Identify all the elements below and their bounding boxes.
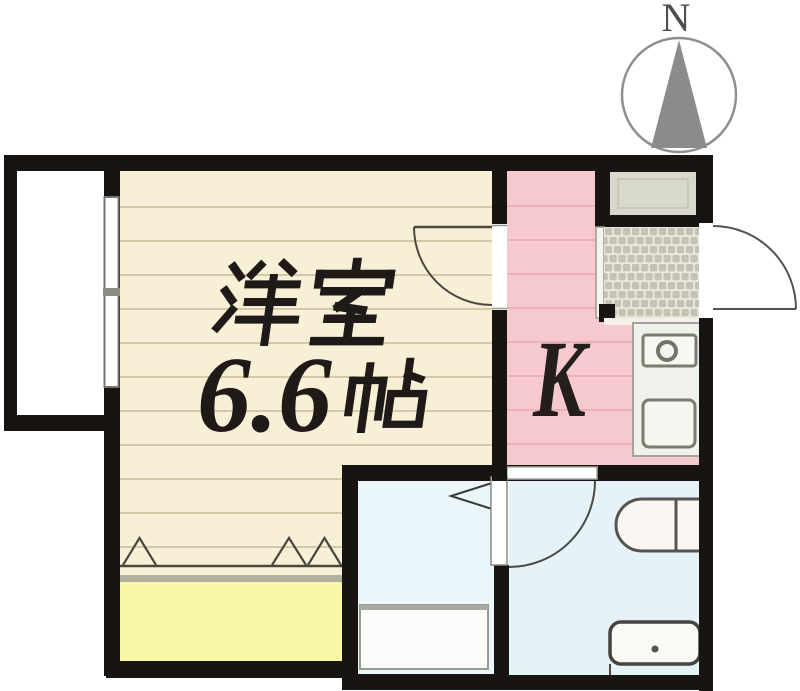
svg-text:K: K (532, 318, 591, 440)
svg-text:6.6: 6.6 (197, 336, 332, 455)
svg-text:N: N (662, 0, 691, 40)
